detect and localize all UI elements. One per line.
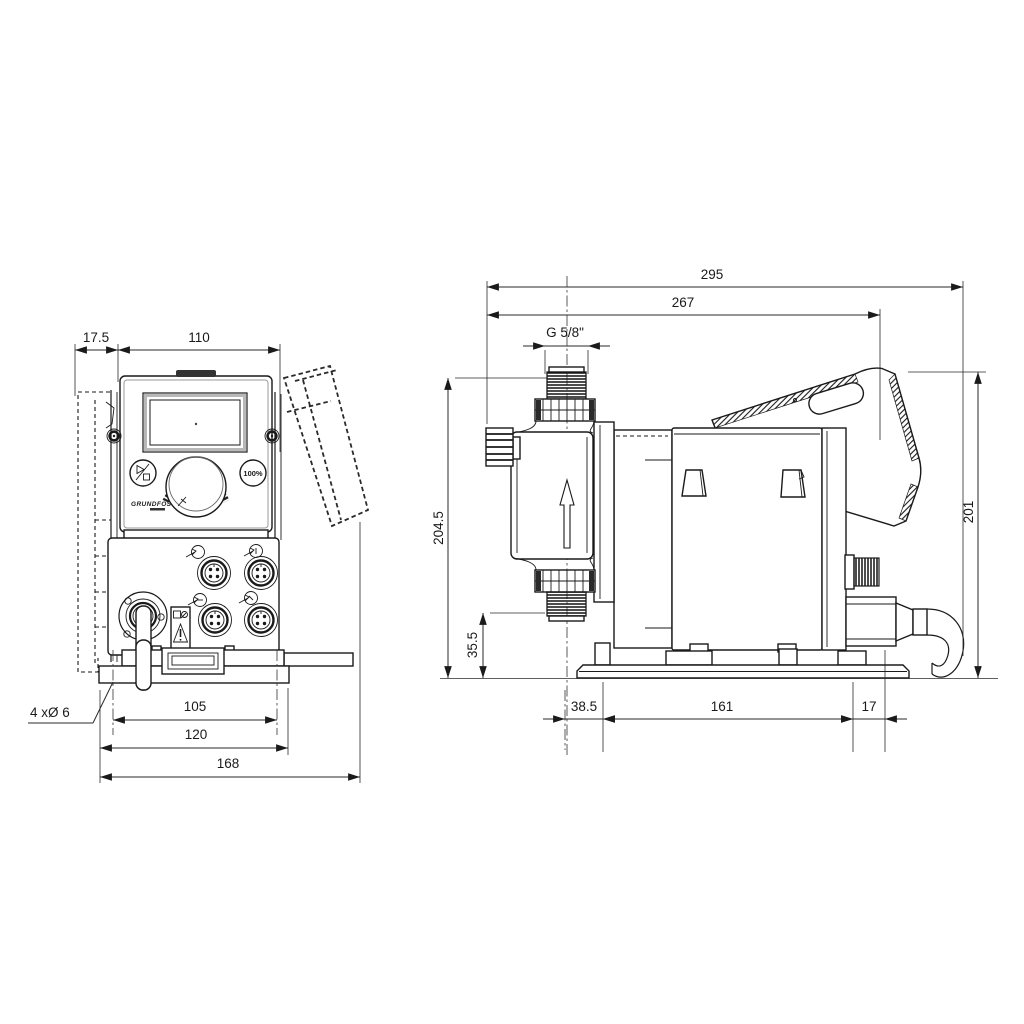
- click-wheel[interactable]: [166, 457, 227, 517]
- control-panel: 100% GRUNDFOS: [120, 370, 272, 532]
- front-view: 100% GRUNDFOS: [28, 330, 368, 783]
- side-view: 295 267 G 5/8" 204.5 35.5 201: [431, 267, 998, 756]
- drive-housing: [614, 428, 846, 652]
- dosing-head: [486, 367, 614, 621]
- dim-offset-top: 17.5: [83, 330, 109, 345]
- dim-thread: G 5/8": [546, 325, 584, 340]
- bottom-union-nut: [535, 570, 595, 592]
- start-stop-button[interactable]: [130, 460, 156, 486]
- m12-connector[interactable]: [199, 604, 232, 637]
- back-threaded-boss: [854, 558, 879, 586]
- dosing-head-body: [511, 432, 593, 559]
- dim-width-top: 110: [188, 330, 210, 345]
- head-flange-plate: [594, 422, 614, 602]
- dim-back-height: 201: [961, 501, 976, 524]
- dim-overall-height: 204.5: [431, 511, 446, 545]
- mounting-foot: [99, 640, 353, 690]
- power-cable-side: [927, 609, 964, 677]
- dim-back-overhang: 17: [861, 699, 876, 714]
- tilted-cover-dashed: [284, 366, 368, 526]
- m12-connector[interactable]: [198, 557, 231, 590]
- m12-connector[interactable]: [245, 557, 278, 590]
- dim-front-overhang: 38.5: [571, 699, 597, 714]
- display: [143, 393, 247, 452]
- drawing-sheet: 100% GRUNDFOS: [0, 0, 1024, 1024]
- dimensional-drawing: 100% GRUNDFOS: [0, 0, 1024, 1024]
- warning-label: [171, 607, 190, 651]
- dim-depth-to-cover: 267: [672, 295, 695, 310]
- hinge-detail: [106, 402, 114, 428]
- dim-plate-depth: 161: [711, 699, 734, 714]
- max-capacity-label: 100%: [243, 469, 263, 478]
- cable-gland: [846, 597, 927, 646]
- rail-clamp: [162, 648, 224, 674]
- wall-mounting-plate: [78, 392, 111, 672]
- hole-callout: 4 xØ 6: [30, 705, 70, 720]
- top-thread-connection: [547, 372, 586, 399]
- dim-hole-spacing: 105: [184, 699, 207, 714]
- power-cable-end: [136, 640, 151, 690]
- bottom-thread-connection: [547, 592, 586, 616]
- m12-connector[interactable]: [245, 604, 278, 637]
- dim-overall-depth: 295: [701, 267, 724, 282]
- top-tab: [176, 370, 216, 377]
- dim-overall-width: 168: [217, 756, 240, 771]
- dim-connection-height: 35.5: [465, 632, 480, 658]
- logo-text: GRUNDFOS: [131, 501, 172, 508]
- top-union-nut: [535, 399, 595, 421]
- max-capacity-button[interactable]: 100%: [240, 460, 266, 486]
- dim-foot-width: 120: [185, 727, 208, 742]
